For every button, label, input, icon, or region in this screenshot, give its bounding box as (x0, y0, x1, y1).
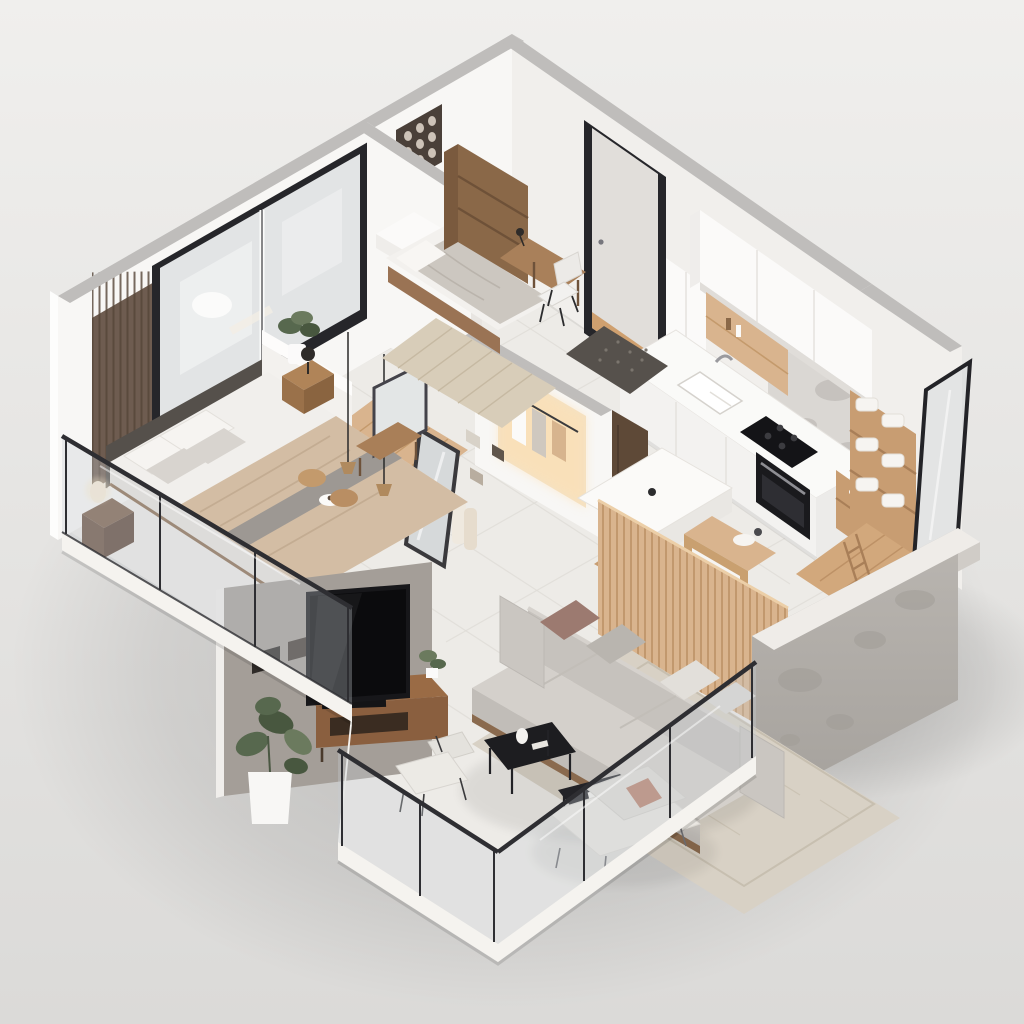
cup (754, 528, 762, 536)
hanging-coat (532, 408, 546, 458)
stool (298, 469, 326, 487)
wall-outer-edge (50, 291, 58, 540)
apartment-render (0, 0, 1024, 1024)
isometric-apartment-svg (0, 0, 1024, 1024)
plate (733, 534, 755, 546)
stool (330, 489, 358, 507)
reflected-chair (192, 292, 232, 318)
upper-cabinet-side (690, 210, 700, 288)
sphere-lamp (301, 347, 315, 361)
table-bowl (648, 488, 656, 496)
door-handle (598, 239, 603, 244)
desk-lamp (516, 228, 524, 236)
vase (516, 728, 528, 744)
